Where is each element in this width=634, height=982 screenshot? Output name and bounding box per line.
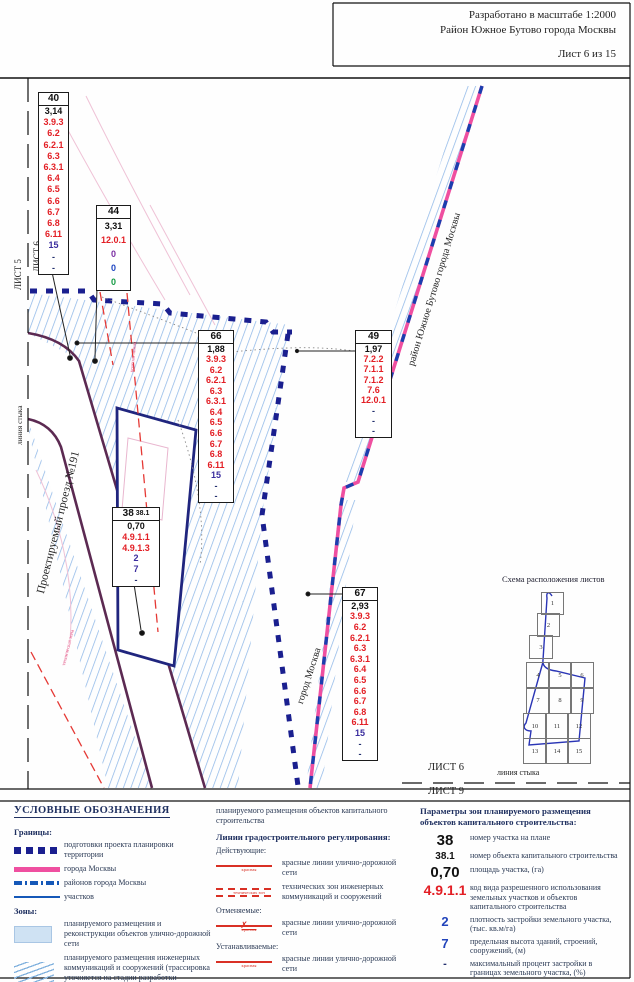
legend-item: планируемого размещения инженерных комму… (14, 953, 212, 982)
parcel-value: 6.3.1 (343, 655, 377, 664)
parcel-value: 6.7 (39, 208, 68, 217)
parcel-value: 6.4 (343, 665, 377, 674)
parcel-value: 7.6 (356, 386, 391, 395)
schema-sheet-3: 3 (529, 635, 553, 659)
parcel-value: 6.6 (343, 687, 377, 696)
parcel-value: 3.9.3 (199, 355, 233, 364)
parcel-value: 15 (39, 241, 68, 250)
magenta-line-swatch (14, 864, 64, 874)
legend-item-text: планируемого размещения инженерных комму… (64, 953, 212, 982)
params-title: Параметры зон планируемого размещения об… (420, 806, 624, 828)
parcel-value: 6.5 (39, 185, 68, 194)
navy-squares-swatch (14, 840, 64, 860)
red-line-swatch: красная (216, 954, 282, 974)
schema-sheet-5: 5 (548, 662, 572, 689)
schema-sheet-1: 1 (541, 592, 564, 615)
parcel-value: 6.2.1 (39, 141, 68, 150)
parcel-id: 49 (356, 331, 391, 344)
legend-item-text: районов города Москвы (64, 878, 212, 888)
param-row: 2плотность застройки земельного участка,… (420, 915, 624, 934)
parcel-value: 6.2 (199, 366, 233, 375)
parcel-value: 6.3 (343, 644, 377, 653)
parcel-value: 6.8 (39, 219, 68, 228)
legend-item-text: планируемого размещения и реконструкции … (64, 919, 212, 949)
schema-sheet-10: 10 (523, 713, 547, 739)
legend-item-text: красные линии улично-дорожной сети (282, 858, 412, 878)
swatch-line (14, 881, 60, 885)
parcel-value: - (356, 417, 391, 426)
param-row: -максимальный процент застройки в границ… (420, 959, 624, 978)
legend-middle-column: планируемого размещения объектов капитал… (216, 806, 412, 978)
legend-item: подготовки проекта планировки территории (14, 840, 212, 860)
parcel-value: 6.2 (343, 623, 377, 632)
lightblue-rect-swatch (14, 919, 64, 949)
parcel-value: 7.1.1 (356, 365, 391, 374)
parcel-value: 7.2.2 (356, 355, 391, 364)
parcel-value: 6.7 (199, 440, 233, 449)
parcel-value: 0 (97, 278, 130, 287)
parcel-value: 4.9.1.3 (113, 544, 159, 553)
swatch-line (14, 896, 60, 898)
parcel-value: 1,97 (356, 345, 391, 354)
parcel-value: 1,88 (199, 345, 233, 354)
parcel-value: 6.2.1 (199, 376, 233, 385)
parcel-value: 6.11 (39, 230, 68, 239)
scale-note: Разработано в масштабе 1:2000 (340, 8, 616, 23)
parcel-value: - (343, 740, 377, 749)
parcel-value: - (199, 492, 233, 501)
param-desc: максимальный процент застройки в граница… (470, 959, 624, 978)
parcel-value: 3.9.3 (343, 612, 377, 621)
parcel-values: 2,933.9.36.26.2.16.36.3.16.46.56.66.76.8… (343, 601, 377, 760)
seam-label-left: линия стыка (15, 405, 24, 445)
schema-sheet-7: 7 (526, 687, 550, 714)
legend-group-heading: Зоны: (14, 906, 212, 916)
plan-sheet-page: Разработано в масштабе 1:2000 Район Южно… (0, 0, 634, 982)
parcel-value: 6.5 (199, 418, 233, 427)
legend-item: города Москвы (14, 864, 212, 874)
swatch-caption: красная (216, 927, 282, 932)
parcel-value: 6.4 (199, 408, 233, 417)
parcel-value: 6.6 (39, 197, 68, 206)
parcel-value: 6.3 (39, 152, 68, 161)
param-key: 38.1 (420, 851, 470, 862)
swatch-line-2 (216, 895, 272, 897)
parcel-box-49: 491,977.2.27.1.17.1.27.612.0.1--- (355, 330, 392, 438)
swatch-line (14, 867, 60, 872)
parcel-box-66: 661,883.9.36.26.2.16.36.3.16.46.56.66.76… (198, 330, 234, 503)
parcel-id: 66 (199, 331, 233, 344)
param-desc: номер участка на плане (470, 833, 624, 843)
regulation-lines-title: Линии градостроительного регулирования: (216, 832, 412, 842)
param-desc: номер объекта капитального строительства (470, 851, 624, 861)
schema-sheet-14: 14 (545, 738, 569, 764)
parcel-value: 6.8 (343, 708, 377, 717)
parcel-value: 6.5 (343, 676, 377, 685)
parcel-values: 3,3112.0.1000 (97, 219, 130, 290)
param-row: 38номер участка на плане (420, 833, 624, 848)
parcel-box-67: 672,933.9.36.26.2.16.36.3.16.46.56.66.76… (342, 587, 378, 761)
schema-sheet-6: 6 (570, 662, 594, 689)
blue-thin-swatch (14, 892, 64, 902)
legend-subgroup-heading: Отменяемые: (216, 906, 412, 916)
schema-sheet-11: 11 (545, 713, 569, 739)
parcel-value: 3,31 (97, 222, 130, 231)
schema-sheet-2: 2 (537, 613, 560, 637)
parcel-values: 1,977.2.27.1.17.1.27.612.0.1--- (356, 344, 391, 437)
parcel-value: 6.2.1 (343, 634, 377, 643)
legend-item-text: города Москвы (64, 864, 212, 874)
param-key: 0,70 (420, 865, 470, 880)
schema-title: Схема расположения листов (502, 574, 605, 584)
parcel-value: 7.1.2 (356, 376, 391, 385)
parcel-value: - (356, 407, 391, 416)
parcel-value: 4.9.1.1 (113, 533, 159, 542)
parcel-value: - (199, 482, 233, 491)
swatch-line (14, 962, 54, 982)
moscow-city-boundary (310, 86, 482, 788)
swatch-caption: красная (216, 963, 282, 968)
parcel-value: - (113, 576, 159, 585)
district-boundary-dashes (310, 86, 482, 788)
schema-sheet-4: 4 (526, 662, 550, 689)
parcel-value: 6.3.1 (199, 397, 233, 406)
swatch-line (14, 847, 60, 854)
param-key: - (420, 959, 470, 970)
param-row: 4.9.1.1код вида разрешенного использован… (420, 883, 624, 912)
parcel-value: 6.8 (199, 450, 233, 459)
legend-title: УСЛОВНЫЕ ОБОЗНАЧЕНИЯ (14, 806, 170, 818)
schema-sheet-15: 15 (567, 738, 591, 764)
parcel-value: 15 (343, 729, 377, 738)
parcel-id: 67 (343, 588, 377, 601)
sheet-bottom-label-9: ЛИСТ 9 (428, 786, 464, 797)
zone-continuation-text: планируемого размещения объектов капитал… (216, 806, 412, 826)
legend-item-text: технических зон инженерных коммуникаций … (282, 882, 412, 902)
cancel-x-icon: ✗ (240, 920, 248, 930)
legend-item-text: красные линии улично-дорожной сети (282, 918, 412, 938)
legend-subgroup-heading: Устанавливаемые: (216, 942, 412, 952)
parcel-value: 6.11 (343, 718, 377, 727)
parcel-id: 44 (97, 206, 130, 219)
parcel-value: 0 (97, 264, 130, 273)
legend-item: технических зонтехнических зон инженерны… (216, 882, 412, 902)
schema-sheet-12: 12 (567, 713, 591, 739)
red-dash-swatch: технических зон (216, 882, 282, 902)
sheet-bottom-label-6: ЛИСТ 6 (428, 762, 464, 773)
parcel-value: 3.9.3 (39, 118, 68, 127)
param-row: 38.1номер объекта капитального строитель… (420, 851, 624, 862)
param-key: 38 (420, 833, 470, 848)
parcel-value: 6.7 (343, 697, 377, 706)
param-key: 4.9.1.1 (420, 883, 470, 897)
legend-group-heading: Границы: (14, 827, 212, 837)
parcel-value: - (39, 264, 68, 273)
parcel-values: 1,883.9.36.26.2.16.36.3.16.46.56.66.76.8… (199, 344, 233, 502)
parcel-id: 40 (39, 93, 68, 106)
parcel-value: 6.6 (199, 429, 233, 438)
parcel-value: 2,93 (343, 602, 377, 611)
legend-item: планируемого размещения и реконструкции … (14, 919, 212, 949)
seam-label-bottom: линия стыка (497, 768, 539, 777)
parcel-value: 6.3 (199, 387, 233, 396)
legend-item: краснаякрасные линии улично-дорожной сет… (216, 858, 412, 878)
parcel-values: 0,704.9.1.14.9.1.327- (113, 521, 159, 586)
blue-dashdot-swatch (14, 878, 64, 888)
swatch-line (14, 926, 52, 943)
parcel-value: 0,70 (113, 522, 159, 531)
parcel-values: 3,143.9.36.26.2.16.36.3.16.46.56.66.76.8… (39, 106, 68, 274)
parcel-value: 2 (113, 554, 159, 563)
schema-sheet-8: 8 (548, 687, 572, 714)
param-row: 0,70площадь участка, (га) (420, 865, 624, 880)
legend-subgroup-heading: Действующие: (216, 846, 412, 856)
param-desc: площадь участка, (га) (470, 865, 624, 875)
param-key: 7 (420, 937, 470, 950)
red-x-swatch: ✗красная (216, 918, 282, 938)
parcel-value: - (343, 750, 377, 759)
param-desc: предельная высота зданий, строений, соор… (470, 937, 624, 956)
object-id: 38.1 (134, 510, 150, 517)
schema-sheet-9: 9 (570, 687, 594, 714)
legend-item-text: участков (64, 892, 212, 902)
district-note: Район Южное Бутово города Москвы (340, 23, 616, 38)
param-desc: плотность застройки земельного участка, … (470, 915, 624, 934)
parcel-id: 38 38.1 (113, 508, 159, 521)
legend-item: ✗краснаякрасные линии улично-дорожной се… (216, 918, 412, 938)
legend-item: краснаякрасные линии улично-дорожной сет… (216, 954, 412, 974)
parcel-value: - (356, 427, 391, 436)
param-row: 7предельная высота зданий, строений, соо… (420, 937, 624, 956)
legend-item: районов города Москвы (14, 878, 212, 888)
param-desc: код вида разрешенного использования земе… (470, 883, 624, 912)
parcel-value: 12.0.1 (356, 396, 391, 405)
parcel-value: 6.2 (39, 129, 68, 138)
legend-item-text: подготовки проекта планировки территории (64, 840, 212, 860)
param-key: 2 (420, 915, 470, 928)
parcel-value: 15 (199, 471, 233, 480)
legend-item-text: красные линии улично-дорожной сети (282, 954, 412, 974)
title-block: Разработано в масштабе 1:2000 Район Южно… (340, 8, 616, 38)
hatch-swatch (14, 953, 64, 982)
parcel-box-44: 443,3112.0.1000 (96, 205, 131, 291)
sheet-edge-label-list5: ЛИСТ 5 (13, 259, 23, 290)
parcel-value: 0 (97, 250, 130, 259)
parcel-value: 6.11 (199, 461, 233, 470)
parcel-value: 6.4 (39, 174, 68, 183)
parcel-value: 3,14 (39, 107, 68, 116)
parcel-box-38: 38 38.10,704.9.1.14.9.1.327- (112, 507, 160, 587)
parcel-value: - (39, 253, 68, 262)
red-line-swatch: красная (216, 858, 282, 878)
legend-left-column: УСЛОВНЫЕ ОБОЗНАЧЕНИЯ Границы:подготовки … (14, 806, 212, 982)
swatch-caption: красная (216, 867, 282, 872)
parcel-value: 6.3.1 (39, 163, 68, 172)
sheet-number-note: Лист 6 из 15 (340, 48, 616, 60)
parcel-value: 12.0.1 (97, 236, 130, 245)
legend-item: участков (14, 892, 212, 902)
schema-sheet-13: 13 (523, 738, 547, 764)
parcel-value: 7 (113, 565, 159, 574)
parcel-box-40: 403,143.9.36.26.2.16.36.3.16.46.56.66.76… (38, 92, 69, 275)
params-column: Параметры зон планируемого размещения об… (420, 806, 624, 981)
